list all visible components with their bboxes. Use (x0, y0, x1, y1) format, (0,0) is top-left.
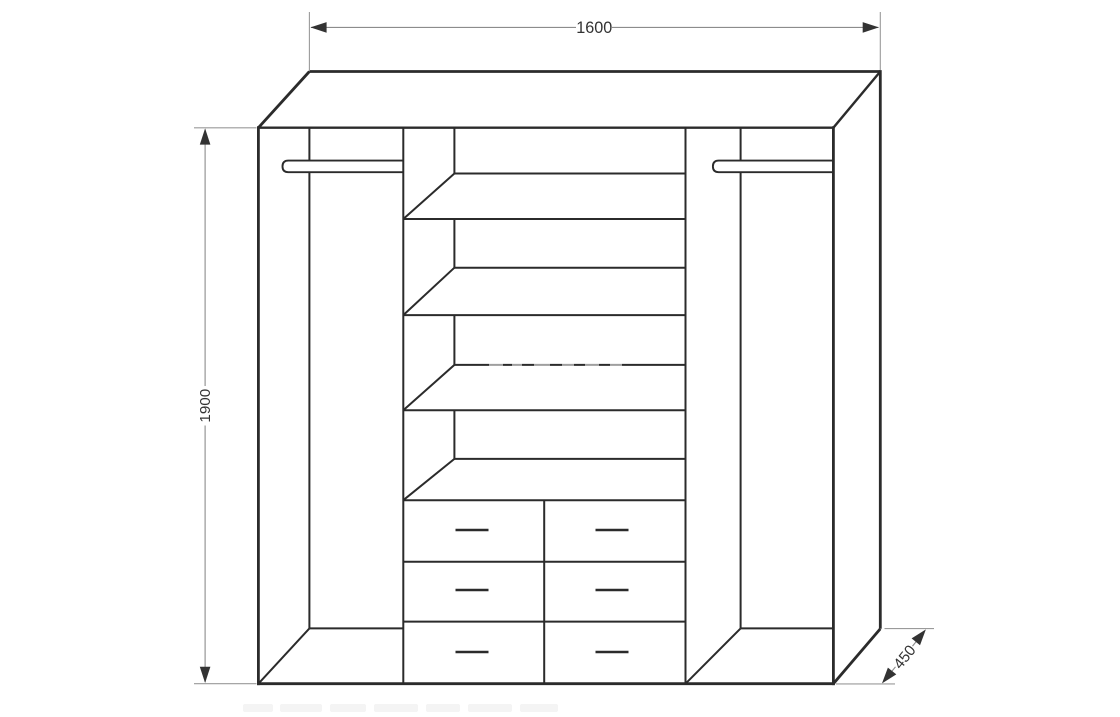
svg-text:1600: 1600 (576, 19, 612, 37)
svg-text:1900: 1900 (197, 389, 214, 423)
